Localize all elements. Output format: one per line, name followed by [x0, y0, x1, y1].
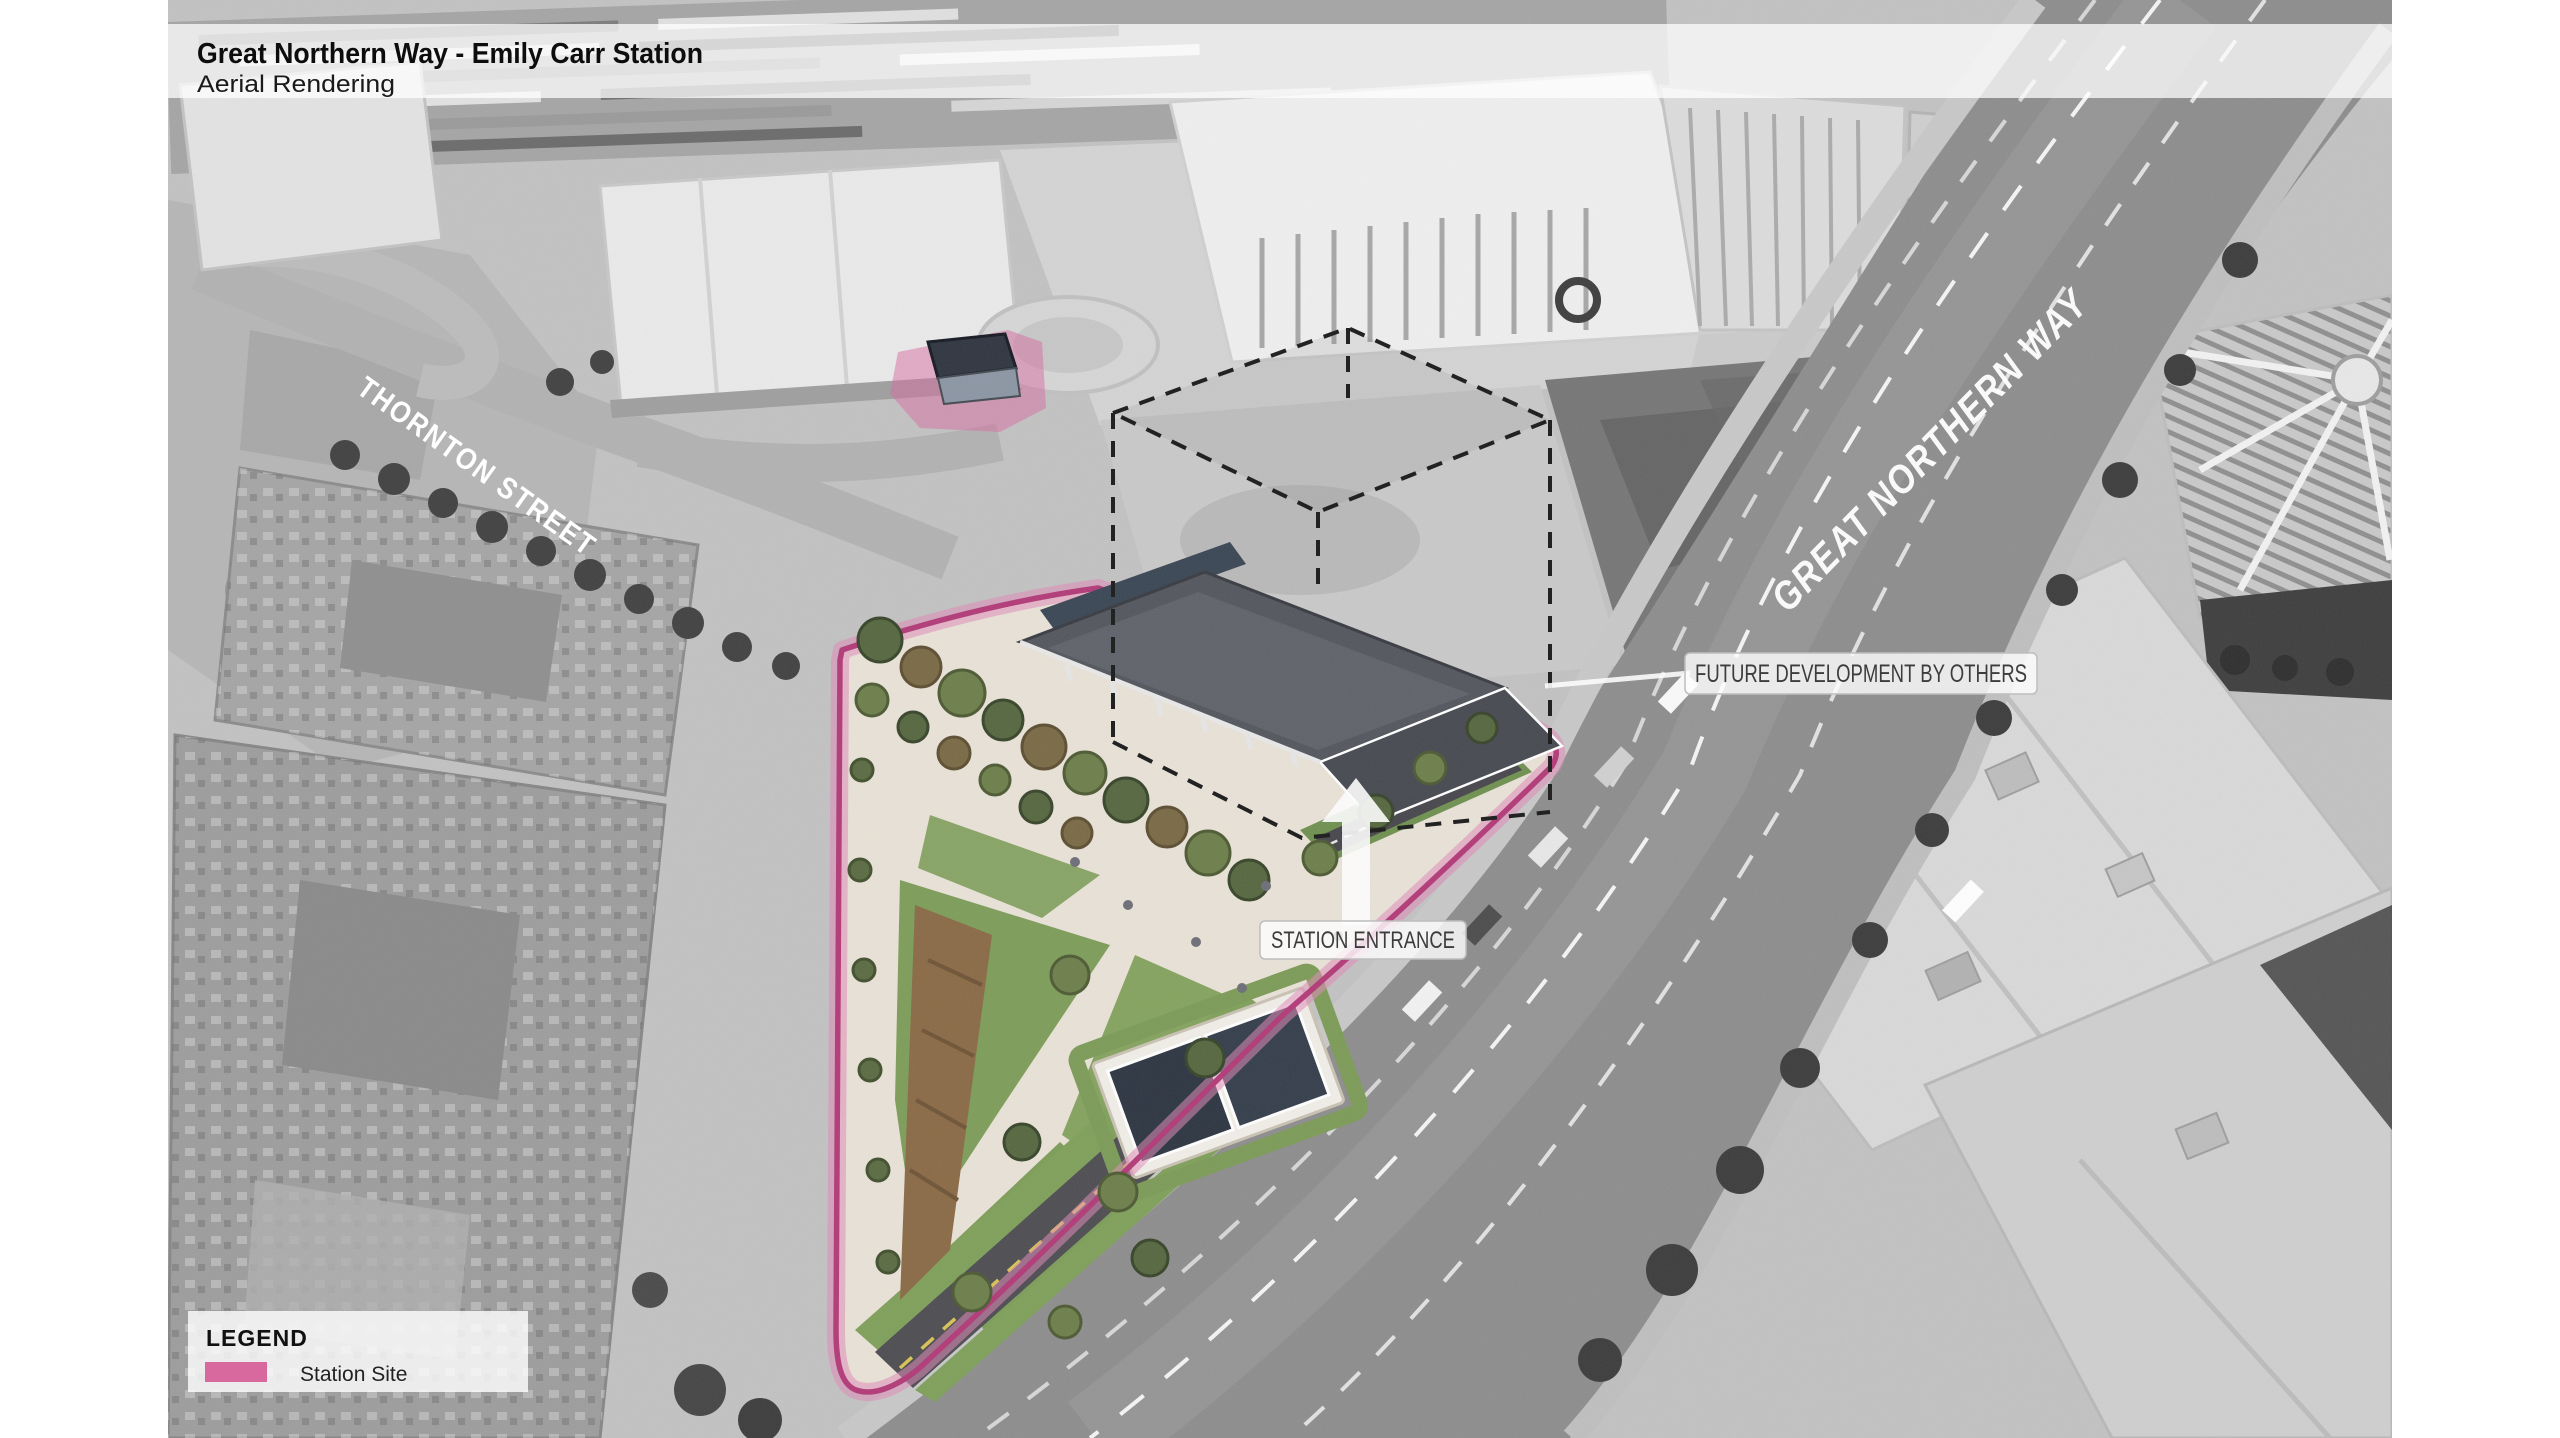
aerial-rendering-page: THORNTON STREET GREAT NORTHERN WAY FUTUR…	[0, 0, 2560, 1438]
future-development-label-text: FUTURE DEVELOPMENT BY OTHERS	[1695, 660, 2027, 688]
aerial-rendering-canvas: THORNTON STREET GREAT NORTHERN WAY FUTUR…	[0, 0, 2560, 1438]
photo-grain	[168, 0, 2392, 1438]
legend-swatch	[205, 1362, 267, 1382]
legend: LEGEND Station Site	[188, 1311, 528, 1392]
legend-title: LEGEND	[206, 1325, 308, 1351]
left-margin	[0, 0, 168, 1438]
title-bar: Great Northern Way - Emily Carr Station …	[168, 24, 2392, 98]
future-development-label: FUTURE DEVELOPMENT BY OTHERS	[1685, 653, 2037, 694]
station-entrance-label: STATION ENTRANCE	[1260, 921, 1466, 959]
station-entrance-label-text: STATION ENTRANCE	[1271, 927, 1455, 954]
aerial-photo	[166, 0, 2392, 1438]
legend-item-label: Station Site	[300, 1363, 407, 1386]
page-subtitle: Aerial Rendering	[197, 71, 395, 98]
page-title: Great Northern Way - Emily Carr Station	[197, 38, 703, 70]
right-margin	[2392, 0, 2560, 1438]
